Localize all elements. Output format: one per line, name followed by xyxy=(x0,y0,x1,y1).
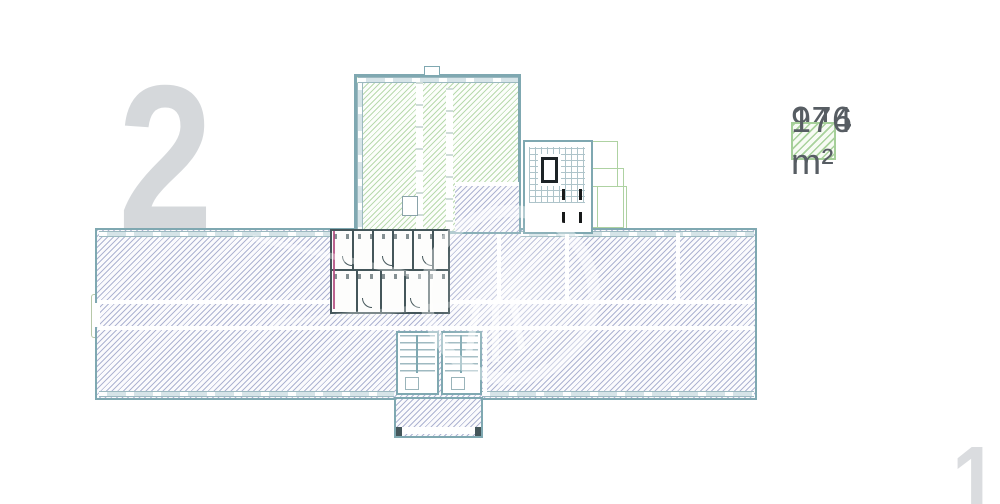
area-label: 176 m² xyxy=(791,99,853,183)
adjacent-floor-number: 1 xyxy=(952,432,998,504)
hall-fixture xyxy=(402,196,418,216)
door-jamb xyxy=(562,212,565,223)
room-divider xyxy=(676,233,680,301)
hall-blue-corner xyxy=(455,186,519,232)
balcony-outline xyxy=(597,186,627,230)
stair-rail xyxy=(460,335,462,373)
door-jamb xyxy=(562,189,565,200)
wc-wall xyxy=(332,269,448,271)
door-jamb xyxy=(579,189,582,200)
entry-door-gap xyxy=(93,303,100,327)
corridor-wall xyxy=(98,326,754,330)
wc-fixtures xyxy=(334,274,448,279)
window-band xyxy=(482,391,754,397)
wc-fixtures xyxy=(334,234,448,239)
stair-rail xyxy=(416,335,418,373)
hall-door-notch xyxy=(424,66,440,76)
room-divider xyxy=(565,233,569,301)
column-strip xyxy=(446,88,453,230)
room-divider xyxy=(483,330,487,392)
stair-landing-door xyxy=(405,377,419,390)
room-divider xyxy=(497,233,501,301)
window-band xyxy=(99,391,394,397)
floor-plan-viewer: 2 xyxy=(0,0,1000,504)
wall-cap xyxy=(475,427,481,436)
extension-wall xyxy=(400,427,477,434)
door-jamb xyxy=(579,212,582,223)
magenta-wall-marker xyxy=(333,231,335,309)
wall-cap xyxy=(396,427,402,436)
hall-window-band xyxy=(358,77,518,83)
window-band xyxy=(99,231,354,237)
hall-window-band xyxy=(357,83,363,229)
stair-landing-door xyxy=(451,377,465,390)
elevator-shaft xyxy=(541,157,558,183)
